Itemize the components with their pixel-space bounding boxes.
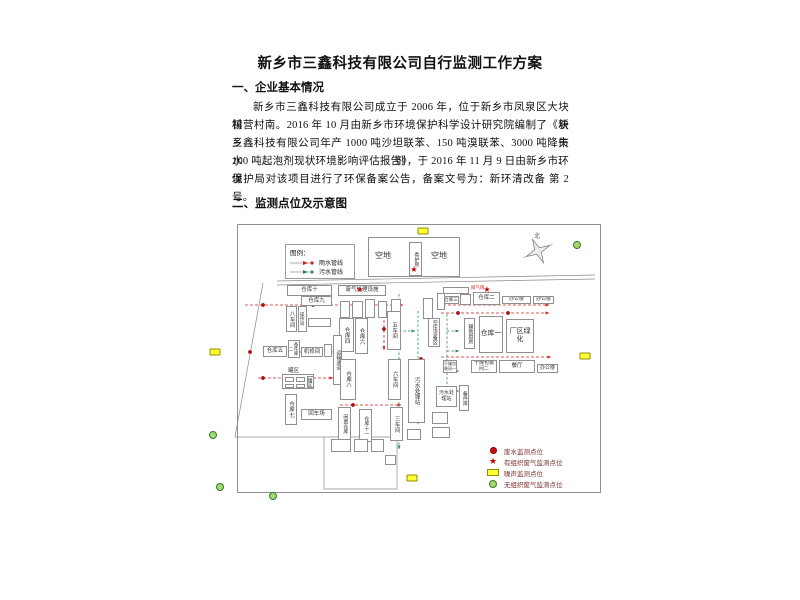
map-box [460,294,471,305]
paragraph-line: 保护局对该项目进行了环保备案公告，备案文号为：新环清改备 第 2 号。 [232,171,569,189]
paragraph-line: 村营村南。2016 年 10 月由新乡市环境保护科学设计研究院编制了《新乡市 [232,117,569,135]
points-legend-label: 无组织废气监测点位 [504,479,563,489]
map-box [443,287,469,294]
monitor-point-wastewater [261,376,264,379]
map-box [296,377,305,382]
intro-paragraph: 新乡市三鑫科技有限公司成立于 2006 年，位于新乡市凤泉区大块镇块村营村南。2… [232,99,569,189]
points-legend-row: ★有组织废气监测点位 [486,456,563,467]
noise-symbol-icon [487,469,499,476]
pipe-legend-title: 图例： [290,247,350,257]
points-legend-row: 无组织废气监测点位 [486,478,563,489]
map-building: 污水处理站 [436,386,457,407]
document-page: 新乡市三鑫科技有限公司自行监测工作方案 一、企业基本情况 新乡市三鑫科技有限公司… [0,0,800,600]
points-legend-label: 噪声监测点位 [504,468,543,478]
map-building: 辅助用房 [464,318,475,349]
monitor-point-noise [580,353,591,360]
monitor-point-wastewater [351,403,354,406]
monitor-point-wastewater [261,303,264,306]
map-building: 仓库九 [301,296,332,306]
points-legend-label: 有组织废气监测点位 [504,457,563,467]
gas-symbol-icon [489,480,497,488]
paragraph-line: 100 吨起泡剂现状环境影响评估报告》，于 2016 年 11 月 9 日由新乡… [232,153,569,171]
monitor-point-fugitive-gas [573,241,581,249]
map-box [308,318,331,327]
map-box [340,301,350,318]
pipeline-symbol [290,260,316,266]
map-label: 罐区 [288,366,299,374]
map-building: 空压设备区 [428,318,440,347]
monitor-point-wastewater [382,327,385,330]
map-box [371,439,384,452]
document-title: 新乡市三鑫科技有限公司自行监测工作方案 [0,52,800,73]
pipe-legend-label: 雨水管线 [319,258,343,267]
map-building: 厂区绿化 [506,319,534,353]
monitor-points-legend: 废水监测点位★有组织废气监测点位噪声监测点位无组织废气监测点位 [486,445,563,489]
pipe-legend-row: 污水管线 [290,267,350,276]
map-box [331,439,351,452]
map-building: 仓库八 [340,359,356,400]
map-building: 办公楼 [533,296,554,304]
monitor-point-fugitive-gas [216,483,224,491]
monitor-point-wastewater [456,311,459,314]
map-building: 仓库十一 [359,409,372,442]
monitor-point-noise [407,475,418,482]
map-building: 回车场 [301,409,332,420]
monitor-point-stack-gas: ★ [356,286,363,294]
pipeline-symbol [290,269,316,275]
monitor-point-fugitive-gas [269,492,277,500]
monitor-point-noise [418,228,429,235]
map-building: 三车间 [390,407,403,441]
map-building: 罐区 [307,376,314,388]
map-building: 仓库十 [287,285,332,296]
paragraph-line: 三鑫科技有限公司年产 1000 吨沙坦联苯、150 吨溴联苯、3000 吨降失水… [232,135,569,153]
map-box [423,298,433,319]
dot-symbol-icon [490,447,497,454]
map-box [432,427,450,438]
points-legend-row: 废水监测点位 [486,445,563,456]
map-box [285,384,294,388]
map-box [385,455,396,465]
map-building: 办公楼 [502,296,531,304]
map-building: 机修间 [301,347,323,357]
monitor-point-noise [210,349,221,356]
monitor-point-wastewater [506,311,509,314]
map-building: 八车间 [286,306,297,332]
map-box [296,384,305,388]
section-heading-monitor-points: 二、监测点位及示意图 [232,195,347,211]
points-legend-label: 废水监测点位 [504,446,543,456]
map-box [378,301,387,318]
map-box [437,293,445,310]
star-symbol-icon: ★ [489,457,497,466]
pipe-legend-row: 雨水管线 [290,258,350,267]
map-box [354,439,368,452]
monitor-point-fugitive-gas [209,431,217,439]
paragraph-line: 新乡市三鑫科技有限公司成立于 2006 年，位于新乡市凤泉区大块镇块 [232,99,569,117]
map-building: 污水处理站 [408,359,425,423]
compass-label: 北 [534,231,540,240]
monitor-point-stack-gas: ★ [483,286,490,294]
map-building: 仓库一 [479,316,503,353]
map-building: 五车间 [387,311,401,350]
map-building: 操作间 [298,306,307,332]
monitor-point-wastewater [248,350,251,353]
pipe-legend-label: 污水管线 [319,267,343,276]
map-box [432,412,448,424]
map-box [407,429,421,440]
map-building: 备件库二 [288,340,300,358]
map-box [324,344,332,357]
map-building: 干燥包装间二 [471,360,497,373]
map-building: 办公楼 [537,364,558,373]
map-label: 空地 [375,250,391,261]
map-building: 餐厅 [499,360,535,373]
map-box [285,377,294,382]
map-building: 备件库 [459,385,469,411]
map-building: 闲置仓库 [338,407,351,440]
map-building: 六车间 [388,359,401,400]
pipe-legend: 图例： 雨水管线污水管线 [285,244,355,279]
map-building: 仓库六 [355,318,368,354]
map-building: 仓库三 [443,296,459,304]
map-box [365,299,375,318]
map-label: 空地 [431,250,447,261]
monitor-point-stack-gas: ★ [410,266,417,274]
map-building: 仓库七 [285,394,297,425]
map-box [352,301,363,318]
section-heading-basic-info: 一、企业基本情况 [232,79,324,95]
site-map: 北 图例： 雨水管线污水管线 废水监测点位★有组织废气监测点位噪声监测点位无组织… [203,219,603,504]
points-legend-row: 噪声监测点位 [486,467,563,478]
map-building: 干燥包装间一 [443,360,457,373]
map-building: 仓库五 [263,346,287,357]
